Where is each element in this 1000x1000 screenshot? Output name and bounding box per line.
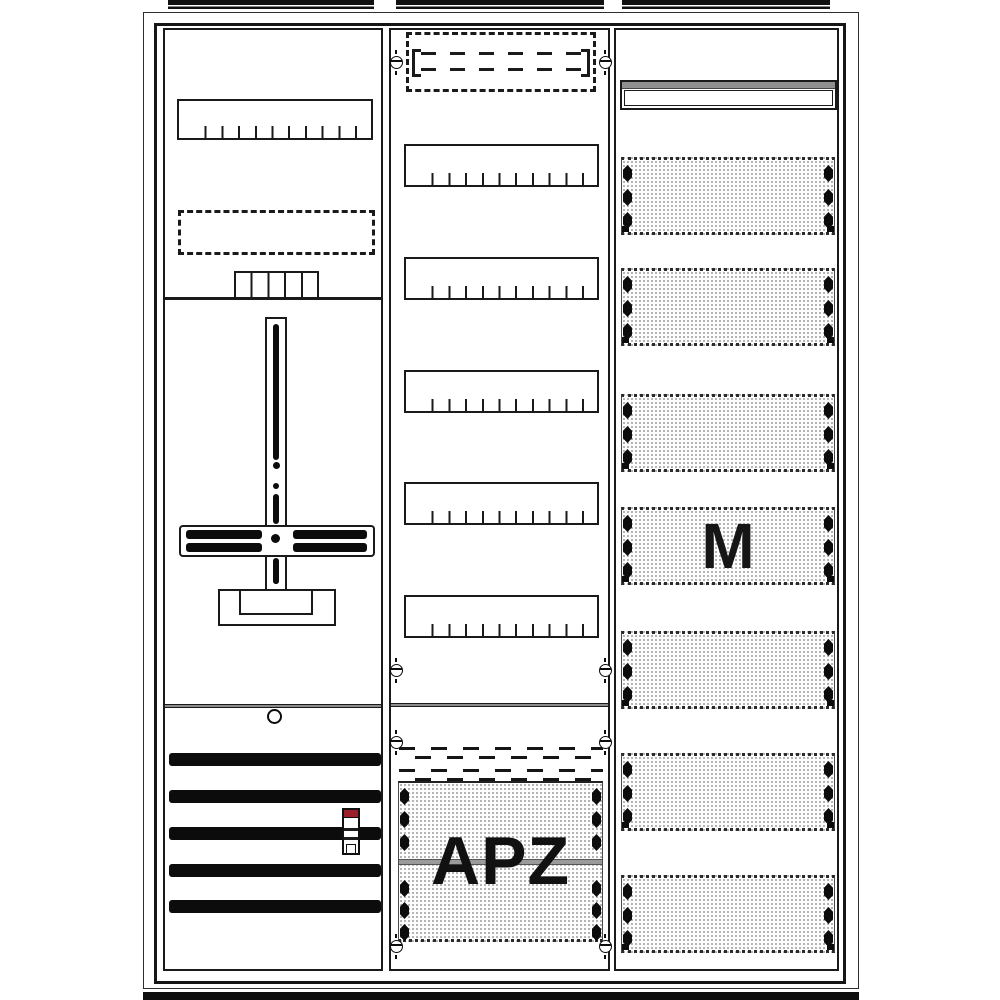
screw-icon bbox=[267, 709, 282, 724]
centerline-dash bbox=[604, 658, 606, 662]
sls-switch-device bbox=[342, 808, 360, 855]
diamond-fastener-icon bbox=[824, 785, 833, 802]
centerline-dash bbox=[395, 71, 397, 75]
screw-head-icon bbox=[599, 664, 612, 677]
left-column bbox=[163, 28, 383, 971]
terminal-block bbox=[234, 271, 319, 300]
screw-icon bbox=[599, 658, 612, 683]
corner-mark bbox=[827, 944, 834, 950]
din-rail bbox=[177, 99, 373, 140]
horizontal-slot bbox=[186, 530, 262, 539]
perforated-panel bbox=[621, 875, 835, 953]
diamond-fastener-icon bbox=[824, 539, 833, 556]
screw-icon bbox=[390, 934, 403, 959]
centerline-dash bbox=[604, 955, 606, 959]
section-divider bbox=[165, 297, 381, 300]
horizontal-slot bbox=[293, 530, 367, 539]
perforated-panel bbox=[621, 268, 835, 346]
screw-icon bbox=[390, 50, 403, 75]
diamond-fastener-icon bbox=[623, 907, 632, 924]
top-flange-middle bbox=[396, 0, 604, 9]
cover-strip-gray-band bbox=[622, 82, 835, 89]
diamond-fastener-icon bbox=[824, 639, 833, 656]
dash-line bbox=[421, 68, 583, 71]
top-flange-right bbox=[622, 0, 830, 9]
diamond-fastener-icon bbox=[400, 811, 409, 828]
diamond-fastener-icon bbox=[623, 426, 632, 443]
dashed-rail-band bbox=[399, 747, 603, 759]
diamond-fastener-icon bbox=[623, 515, 632, 532]
corner-mark bbox=[827, 226, 834, 232]
screw-icon bbox=[599, 934, 612, 959]
cover-strip-inner bbox=[624, 90, 833, 106]
din-rail bbox=[404, 482, 599, 525]
bracket-icon bbox=[581, 49, 590, 77]
corner-mark bbox=[622, 944, 629, 950]
diamond-fastener-icon bbox=[592, 811, 601, 828]
top-flange-left bbox=[168, 0, 374, 9]
diamond-fastener-icon bbox=[592, 788, 601, 805]
diamond-fastener-icon bbox=[592, 880, 601, 897]
corner-mark bbox=[827, 822, 834, 828]
apz-panel: APZ bbox=[398, 781, 603, 942]
perforated-panel bbox=[621, 631, 835, 709]
corner-mark bbox=[827, 337, 834, 343]
centerline-dash bbox=[604, 679, 606, 683]
diamond-fastener-icon bbox=[824, 165, 833, 182]
bracket-inner bbox=[239, 589, 313, 615]
din-rail bbox=[404, 595, 599, 638]
diamond-fastener-icon bbox=[400, 834, 409, 851]
diamond-fastener-icon bbox=[623, 639, 632, 656]
corner-mark bbox=[622, 576, 629, 582]
diamond-fastener-icon bbox=[824, 907, 833, 924]
screw-icon bbox=[390, 730, 403, 755]
screw-head-icon bbox=[390, 940, 403, 953]
diamond-fastener-icon bbox=[824, 276, 833, 293]
centerline-dash bbox=[604, 50, 606, 54]
centerline-dash bbox=[395, 751, 397, 755]
horizontal-slot bbox=[186, 543, 262, 552]
centerline-dash bbox=[395, 934, 397, 938]
red-cap bbox=[344, 810, 358, 818]
device-tab bbox=[346, 844, 356, 854]
corner-mark bbox=[622, 822, 629, 828]
diamond-fastener-icon bbox=[824, 300, 833, 317]
diamond-fastener-icon bbox=[400, 880, 409, 897]
perforated-panel bbox=[621, 157, 835, 235]
screw-head-icon bbox=[390, 736, 403, 749]
dashed-mounting-area bbox=[178, 210, 375, 255]
center-hole bbox=[271, 534, 280, 543]
m-panel: M bbox=[621, 507, 835, 585]
diamond-fastener-icon bbox=[400, 902, 409, 919]
diamond-fastener-icon bbox=[824, 663, 833, 680]
diamond-fastener-icon bbox=[623, 165, 632, 182]
busbar bbox=[169, 864, 381, 877]
section-divider bbox=[391, 703, 608, 707]
centerline-dash bbox=[604, 751, 606, 755]
corner-mark bbox=[622, 226, 629, 232]
diamond-fastener-icon bbox=[592, 902, 601, 919]
centerline-dash bbox=[395, 658, 397, 662]
bracket-icon bbox=[412, 49, 421, 77]
vertical-slot bbox=[273, 558, 279, 584]
screw-icon bbox=[599, 50, 612, 75]
centerline-dash bbox=[395, 679, 397, 683]
centerline-dash bbox=[604, 730, 606, 734]
corner-mark bbox=[622, 700, 629, 706]
din-rail bbox=[404, 370, 599, 413]
centerline-dash bbox=[604, 71, 606, 75]
screw-head-icon bbox=[390, 56, 403, 69]
screw-icon bbox=[390, 658, 403, 683]
apz-label: APZ bbox=[431, 827, 570, 895]
device-line bbox=[344, 828, 358, 831]
corner-mark bbox=[622, 337, 629, 343]
corner-mark bbox=[827, 576, 834, 582]
centerline-dash bbox=[395, 50, 397, 54]
diamond-fastener-icon bbox=[623, 402, 632, 419]
mounting-hole bbox=[273, 462, 280, 469]
diamond-fastener-icon bbox=[824, 515, 833, 532]
diamond-fastener-icon bbox=[623, 663, 632, 680]
diamond-fastener-icon bbox=[623, 189, 632, 206]
diamond-fastener-icon bbox=[623, 300, 632, 317]
diamond-fastener-icon bbox=[623, 761, 632, 778]
din-rail bbox=[404, 144, 599, 187]
diamond-fastener-icon bbox=[623, 883, 632, 900]
vertical-slot bbox=[273, 494, 279, 524]
right-column: M bbox=[614, 28, 839, 971]
dashed-device-area bbox=[406, 32, 596, 92]
dashed-rail-band bbox=[399, 769, 603, 781]
diamond-fastener-icon bbox=[400, 788, 409, 805]
diamond-fastener-icon bbox=[592, 834, 601, 851]
cover-strip bbox=[620, 80, 837, 110]
centerline-dash bbox=[604, 934, 606, 938]
perforated-panel bbox=[621, 753, 835, 831]
device-line bbox=[344, 837, 358, 840]
screw-icon bbox=[599, 730, 612, 755]
busbar bbox=[169, 790, 381, 803]
diamond-fastener-icon bbox=[824, 189, 833, 206]
dash-line bbox=[421, 52, 583, 55]
cabinet-bottom-strip bbox=[143, 992, 859, 1000]
centerline-dash bbox=[395, 730, 397, 734]
diamond-fastener-icon bbox=[623, 276, 632, 293]
horizontal-slot bbox=[293, 543, 367, 552]
busbar bbox=[169, 753, 381, 766]
diamond-fastener-icon bbox=[824, 402, 833, 419]
m-label: M bbox=[701, 514, 754, 578]
screw-head-icon bbox=[599, 56, 612, 69]
screw-head-icon bbox=[390, 664, 403, 677]
perforated-panel bbox=[621, 394, 835, 472]
mounting-hole bbox=[273, 483, 279, 489]
diamond-fastener-icon bbox=[824, 761, 833, 778]
meter-cabinet-diagram: APZ M bbox=[0, 0, 1000, 1000]
corner-mark bbox=[827, 463, 834, 469]
busbar bbox=[169, 900, 381, 913]
middle-column: APZ bbox=[389, 28, 610, 971]
centerline-dash bbox=[395, 955, 397, 959]
diamond-fastener-icon bbox=[824, 883, 833, 900]
screw-head-icon bbox=[599, 736, 612, 749]
din-rail bbox=[404, 257, 599, 300]
corner-mark bbox=[622, 463, 629, 469]
corner-mark bbox=[827, 700, 834, 706]
screw-head-icon bbox=[599, 940, 612, 953]
diamond-fastener-icon bbox=[824, 426, 833, 443]
section-divider bbox=[165, 704, 381, 708]
vertical-slot bbox=[273, 324, 279, 460]
diamond-fastener-icon bbox=[623, 785, 632, 802]
diamond-fastener-icon bbox=[623, 539, 632, 556]
